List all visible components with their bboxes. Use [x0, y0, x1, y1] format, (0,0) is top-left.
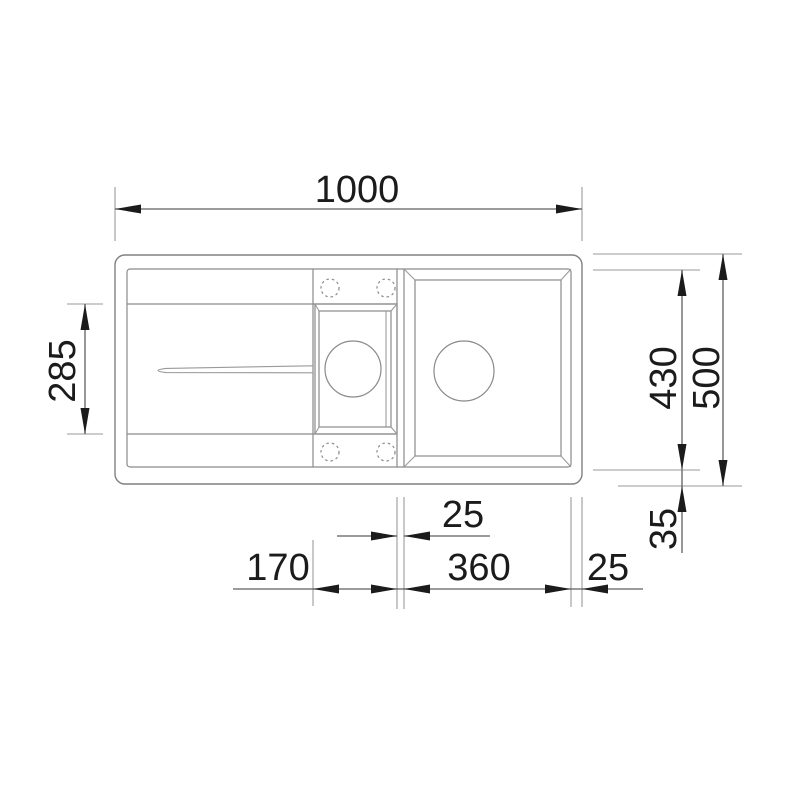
arrowhead-right [545, 585, 571, 594]
arrowhead-down [81, 408, 90, 434]
arrowhead-up [678, 270, 687, 296]
arrowhead-down [719, 460, 728, 486]
tap-hole-top-left [321, 279, 339, 297]
dim-bowl-to-bottom-edge: 35 [593, 470, 700, 553]
small-bowl-chamfer-tl [315, 304, 319, 311]
dim-overall-width: 1000 [115, 169, 582, 241]
small-bowl [315, 304, 397, 434]
main-bowl-inner [415, 280, 561, 456]
dim-label-overall-width: 1000 [315, 169, 400, 211]
dim-label-small-bowl-width: 170 [246, 547, 309, 589]
arrowhead-up [719, 254, 728, 280]
arrowhead-right [371, 532, 397, 541]
dim-label-bowl-gap: 25 [442, 494, 484, 536]
tap-hole-bottom-left [321, 443, 339, 461]
dim-main-bowl-width: 360 [404, 547, 571, 594]
small-bowl-outer [315, 304, 397, 434]
dim-bowl-to-right-edge: 25 [582, 547, 629, 594]
dim-main-bowl-depth: 430 [593, 270, 700, 470]
small-bowl-drain [325, 341, 381, 397]
dim-label-bowl-to-right-edge: 25 [587, 547, 629, 589]
arrowhead-right [371, 585, 397, 594]
arrowhead-up [81, 304, 90, 330]
main-bowl-chamfer-bl [404, 456, 415, 467]
dim-label-main-bowl-depth: 430 [643, 346, 685, 409]
main-bowl-chamfer-tl [404, 269, 415, 280]
arrowhead-left [115, 205, 141, 214]
dim-label-bowl-to-bottom-edge: 35 [643, 508, 685, 550]
main-bowl-drain [434, 341, 494, 401]
dim-small-bowl-width: 170 [246, 547, 397, 594]
dim-bottom-row: 170 360 25 [233, 497, 643, 607]
dim-label-drainer-recess-depth: 285 [42, 339, 84, 402]
dim-drainer-recess-depth: 285 [42, 304, 103, 434]
arrowhead-left [313, 585, 339, 594]
arrowhead-right [556, 205, 582, 214]
sink-plan [115, 255, 582, 484]
arrowhead-left [404, 532, 430, 541]
dim-label-main-bowl-width: 360 [447, 547, 510, 589]
tap-hole-top-right [377, 279, 395, 297]
main-bowl-chamfer-tr [561, 269, 571, 280]
main-bowl-chamfer-br [561, 456, 571, 467]
arrowhead-down [678, 444, 687, 470]
tap-hole-bottom-right [377, 443, 395, 461]
small-bowl-chamfer-br [391, 427, 397, 434]
sink-dimension-drawing: 1000 285 430 500 35 [0, 0, 800, 800]
sink-outer-edge [115, 255, 582, 484]
small-bowl-chamfer-tr [391, 304, 397, 311]
dim-label-overall-depth: 500 [686, 346, 728, 409]
small-bowl-chamfer-bl [315, 427, 319, 434]
small-bowl-inner [319, 311, 391, 427]
main-bowl [404, 269, 571, 467]
arrowhead-left [404, 585, 430, 594]
drainboard-groove [158, 366, 313, 373]
technical-drawing-canvas: 1000 285 430 500 35 [0, 0, 800, 800]
